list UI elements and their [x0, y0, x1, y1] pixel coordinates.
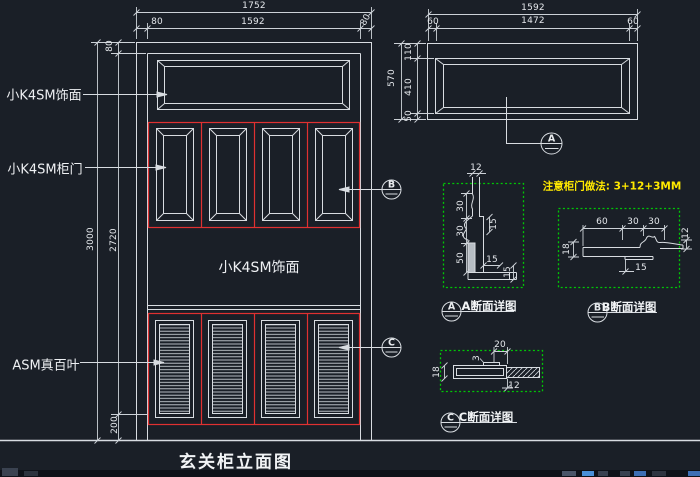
taskbar-item[interactable] [582, 471, 594, 476]
taskbar-item[interactable] [598, 471, 608, 476]
dim-top-height: 80 [105, 40, 115, 52]
panel-dim-inner-width: 1472 [521, 16, 545, 26]
detail-b-dim-18: 18 [562, 243, 572, 255]
dim-inner-height: 2720 [109, 228, 119, 252]
drawing-title: 玄关柜立面图 [179, 448, 293, 473]
label-mid-veneer: 小K4SM饰面 [218, 257, 299, 277]
taskbar-item[interactable] [620, 471, 630, 476]
section-marker-c: C [388, 338, 395, 349]
dim-margin-left: 80 [151, 17, 163, 27]
cad-viewport: B C A A B C 1752 80 1592 80 80 3000 2720… [0, 0, 700, 477]
label-cabinet-door: 小K4SM柜门 [7, 159, 82, 178]
detail-b-dim-30b: 30 [648, 217, 660, 227]
door-construction-note: 注意柜门做法: 3+12+3MM [543, 179, 682, 194]
panel-detail-drawing [428, 44, 638, 155]
detail-a-dim-15b: 15 [486, 255, 498, 265]
taskbar-item[interactable] [634, 471, 646, 476]
detail-c-dim-18: 18 [432, 366, 442, 378]
detail-c-dim-20: 20 [494, 340, 506, 350]
detail-c-dim-12: 12 [508, 381, 520, 391]
detail-a-dim-15c: 15 [503, 266, 513, 278]
detail-c-label: C断面详图 [459, 409, 513, 425]
detail-b-dim-30a: 30 [627, 217, 639, 227]
cad-linework: B C A A B C [0, 0, 700, 477]
detail-a-label: A断面详图 [462, 298, 517, 314]
detail-c-profile [454, 363, 540, 379]
section-marker-a-panel: A [548, 134, 556, 145]
taskbar-item[interactable] [688, 471, 700, 476]
detail-b-dim-12: 12 [681, 227, 691, 239]
detail-b-dim-60: 60 [596, 217, 608, 227]
detail-b-profile [583, 236, 683, 259]
layout-tab[interactable] [24, 471, 38, 476]
detail-b-label: B断面详图 [602, 299, 657, 315]
section-bubbles [382, 180, 401, 357]
detail-a-dim-50: 50 [456, 252, 466, 264]
panel-dim-right: 60 [627, 17, 639, 27]
taskbar-item[interactable] [562, 471, 576, 476]
label-top-veneer: 小K4SM饰面 [6, 85, 81, 104]
detail-c-dim-3: 3 [472, 355, 482, 361]
panel-dim-top: 110 [404, 43, 414, 61]
dim-base-height: 200 [110, 416, 120, 434]
detail-a-marker: A [448, 302, 456, 313]
panel-dim-left: 60 [427, 17, 439, 27]
detail-a-dim-15a: 15 [489, 218, 499, 230]
panel-dim-bottom: 50 [404, 110, 414, 122]
detail-a-dim-30a: 30 [456, 200, 466, 212]
panel-dim-total-width: 1592 [521, 3, 545, 13]
panel-dim-mid: 410 [404, 78, 414, 96]
dim-total-height: 3000 [86, 227, 96, 251]
dim-inner-width: 1592 [241, 17, 265, 27]
detail-b-marker: B [594, 303, 601, 314]
layout-tab[interactable] [2, 468, 18, 476]
panel-dim-total-height: 570 [387, 69, 397, 87]
status-bar [0, 470, 700, 477]
detail-c-marker: C [447, 413, 454, 424]
detail-a-dim-30b: 30 [456, 225, 466, 237]
dim-total-width: 1752 [242, 1, 266, 11]
taskbar-item[interactable] [652, 471, 666, 476]
label-louver: ASM真百叶 [12, 355, 79, 374]
detail-b-dims [568, 225, 692, 275]
detail-b-dim-15: 15 [635, 263, 647, 273]
detail-a-dim-12: 12 [470, 163, 482, 173]
section-marker-b: B [388, 180, 395, 191]
